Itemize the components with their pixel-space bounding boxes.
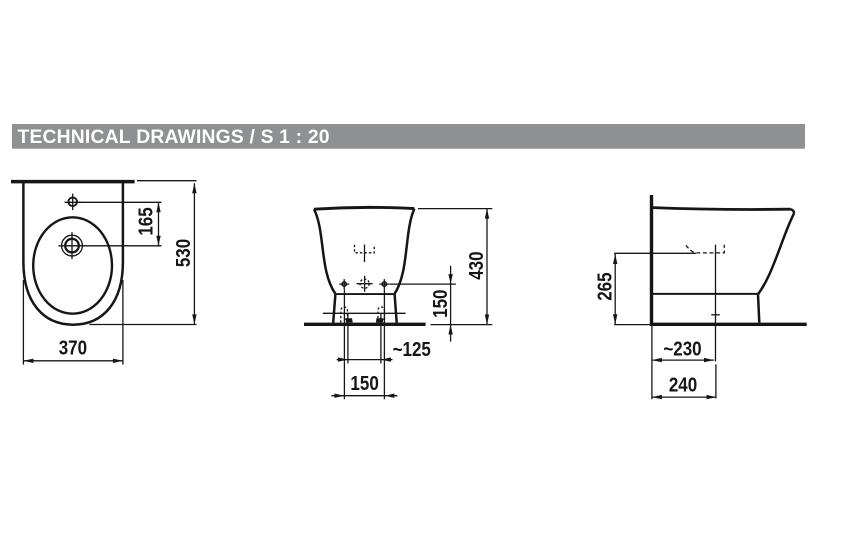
svg-text:430: 430 xyxy=(465,251,488,279)
svg-text:TECHNICAL DRAWINGS / S 1 : 20: TECHNICAL DRAWINGS / S 1 : 20 xyxy=(18,127,330,148)
svg-text:150: 150 xyxy=(350,372,378,395)
svg-text:265: 265 xyxy=(593,272,616,300)
svg-text:150: 150 xyxy=(428,290,451,318)
svg-text:~125: ~125 xyxy=(393,337,431,360)
svg-text:~230: ~230 xyxy=(663,337,701,360)
svg-text:165: 165 xyxy=(134,207,157,235)
svg-text:370: 370 xyxy=(59,336,87,359)
svg-text:240: 240 xyxy=(669,373,697,396)
svg-text:530: 530 xyxy=(172,239,195,267)
